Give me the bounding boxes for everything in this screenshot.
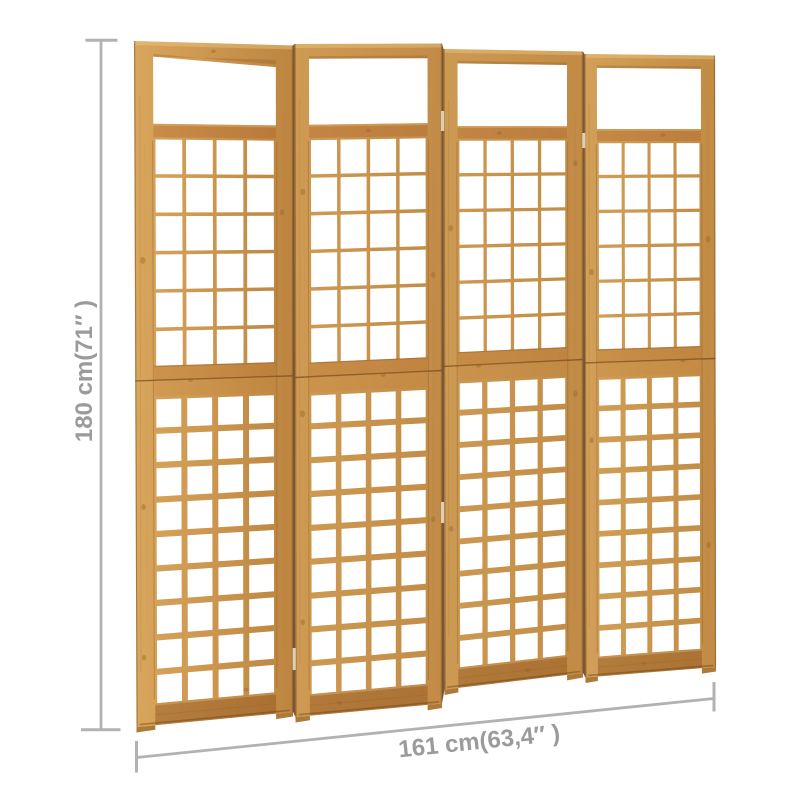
svg-text:180 cm(71′′ ): 180 cm(71′′ ) (71, 300, 98, 442)
